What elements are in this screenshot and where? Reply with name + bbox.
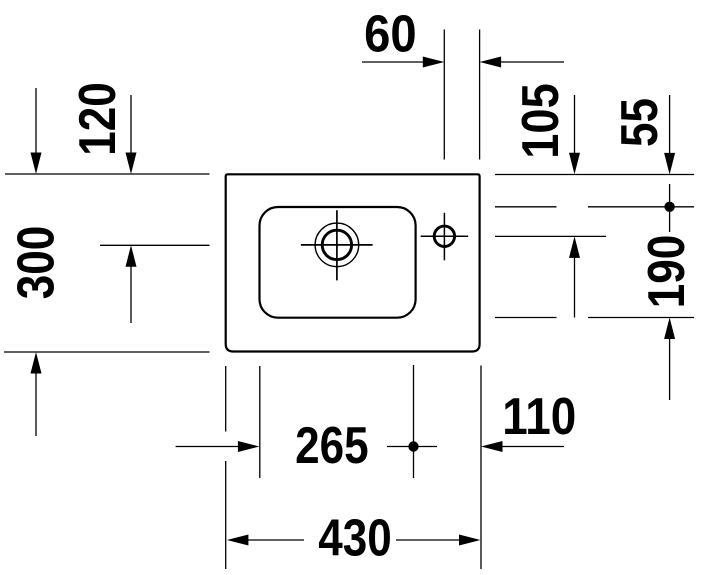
svg-text:190: 190 xyxy=(638,235,696,309)
svg-text:105: 105 xyxy=(512,83,570,159)
svg-text:300: 300 xyxy=(7,226,65,300)
svg-text:265: 265 xyxy=(295,417,369,475)
svg-text:430: 430 xyxy=(318,510,392,568)
svg-text:55: 55 xyxy=(611,98,669,147)
svg-text:110: 110 xyxy=(502,388,576,446)
svg-text:60: 60 xyxy=(364,6,417,64)
svg-text:120: 120 xyxy=(69,82,127,156)
